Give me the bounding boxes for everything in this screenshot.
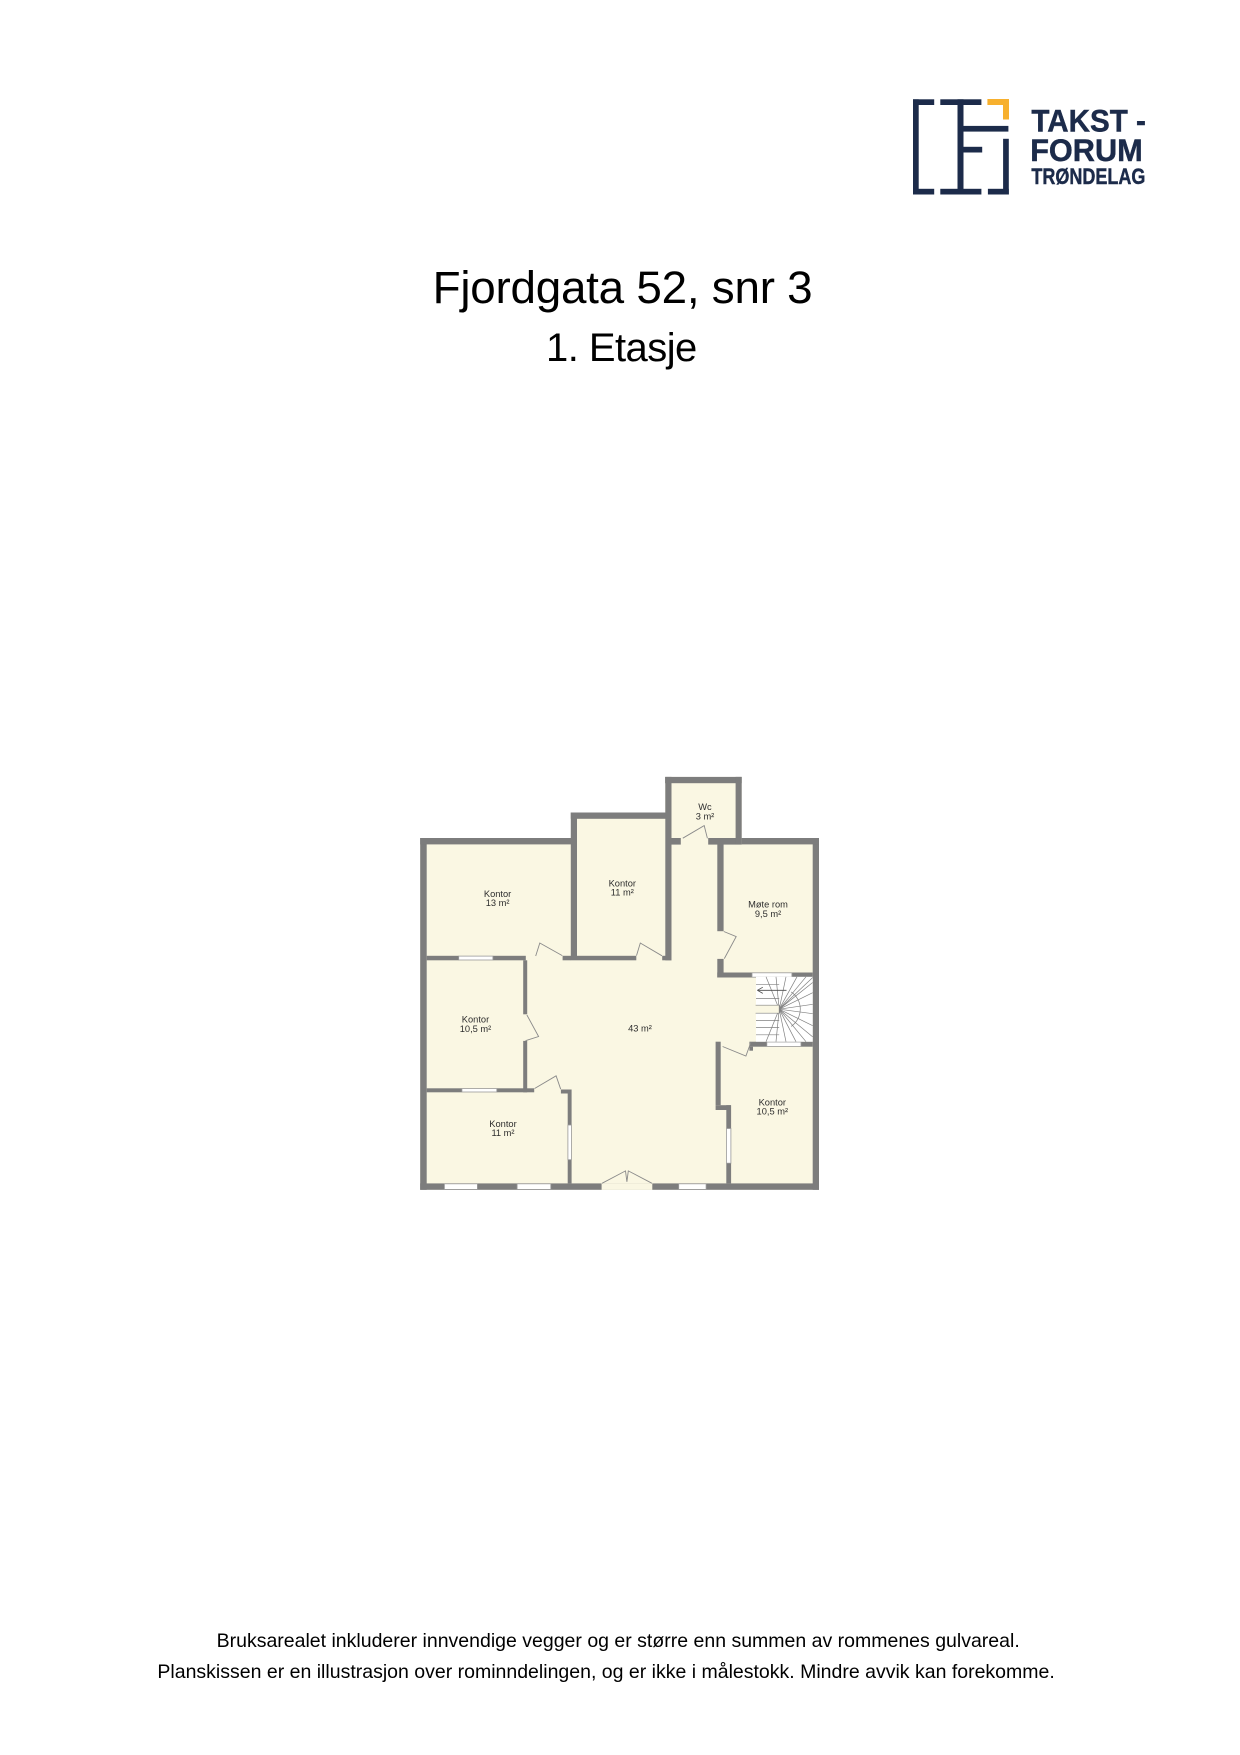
svg-text:FORUM: FORUM — [1030, 133, 1143, 168]
svg-text:Kontor10,5 m²: Kontor10,5 m² — [460, 1015, 492, 1034]
svg-text:43 m²: 43 m² — [628, 1024, 652, 1034]
svg-text:Kontor11 m²: Kontor11 m² — [489, 1119, 516, 1138]
svg-text:Wc3 m²: Wc3 m² — [696, 802, 715, 821]
svg-text:TRØNDELAG: TRØNDELAG — [1031, 164, 1145, 189]
svg-text:Kontor13 m²: Kontor13 m² — [484, 889, 511, 908]
svg-text:Kontor10,5 m²: Kontor10,5 m² — [757, 1098, 789, 1117]
svg-text:Kontor11 m²: Kontor11 m² — [609, 878, 636, 897]
